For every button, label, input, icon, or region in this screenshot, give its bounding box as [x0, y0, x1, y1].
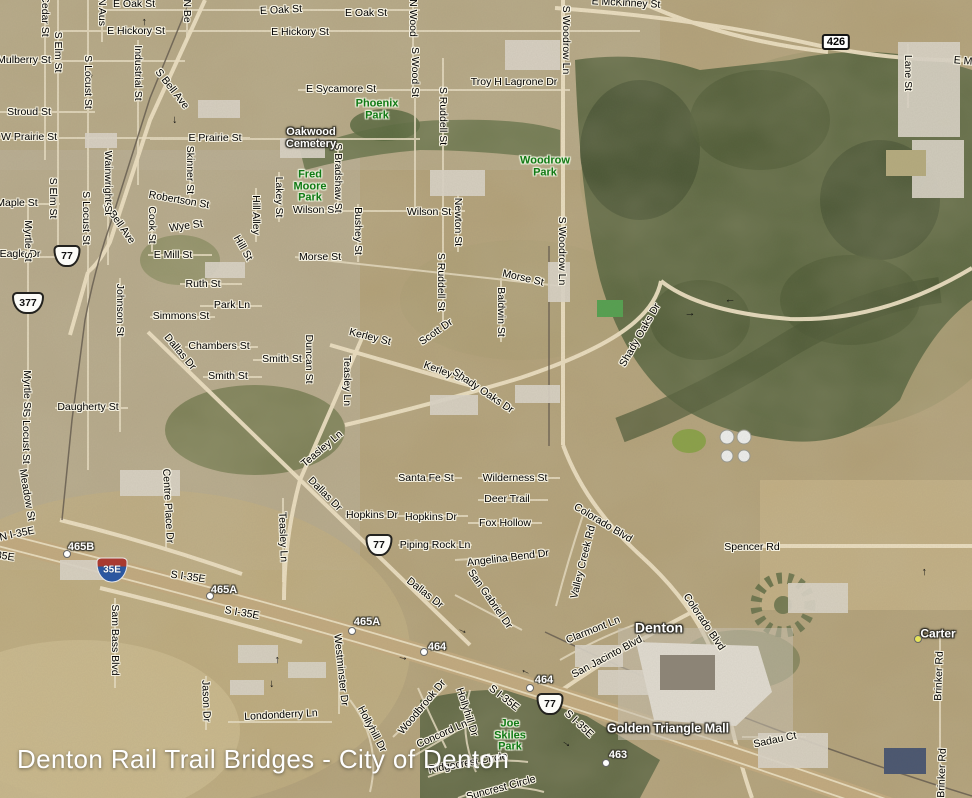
- exit-number-label: 465A: [211, 584, 237, 596]
- street-label: Eagle Dr: [0, 248, 40, 260]
- street-label: S Locust St: [80, 191, 92, 245]
- street-label: Sam Bass Blvd: [109, 604, 121, 675]
- park-label: FredMoorePark: [294, 170, 327, 205]
- label-line: Park: [356, 110, 399, 122]
- street-label: Stroud St: [7, 106, 51, 118]
- park-label: WoodrowPark: [520, 155, 570, 178]
- one-way-arrow-icon: →: [397, 650, 410, 664]
- exit-dot: [602, 759, 610, 767]
- exit-number-label: 464: [535, 674, 553, 686]
- one-way-arrow-icon: →: [685, 307, 696, 319]
- place-label: Carter: [920, 628, 955, 641]
- street-label: Teasley Ln: [276, 512, 290, 563]
- street-label: N Aus: [96, 0, 108, 26]
- exit-dot: [206, 592, 214, 600]
- shield-number: 77: [373, 539, 385, 551]
- street-label: E Oak St: [113, 0, 155, 10]
- label-line: Fred: [294, 170, 327, 182]
- street-label: Newton St: [452, 198, 464, 246]
- street-label: Industrial St: [132, 45, 144, 100]
- street-label: Smith St: [208, 370, 248, 382]
- place-label: Golden Triangle Mall: [607, 722, 729, 736]
- street-label: E M: [953, 54, 972, 68]
- street-label: Deer Trail: [484, 493, 530, 505]
- one-way-arrow-icon: →: [270, 655, 282, 666]
- street-label: S Woodrow Ln: [556, 217, 568, 286]
- loop-426-shield: 426: [822, 34, 850, 50]
- street-label: Ruth St: [185, 278, 220, 290]
- street-label: Fox Hollow: [479, 517, 531, 529]
- street-label: Johnson St: [114, 284, 126, 337]
- label-line: Cemetery: [286, 139, 336, 151]
- street-label: Simmons St: [153, 310, 210, 322]
- street-label: Piping Rock Ln: [400, 539, 471, 551]
- street-label: Baldwin St: [495, 287, 507, 337]
- exit-dot: [420, 648, 428, 656]
- street-label: Santa Fe St: [398, 472, 453, 484]
- one-way-arrow-icon: →: [725, 296, 736, 308]
- street-label: Daugherty St: [57, 401, 118, 413]
- street-label: Wilderness St: [483, 472, 548, 484]
- street-label: Brinker Rd: [935, 748, 949, 798]
- street-label: Jason Dr: [199, 680, 212, 722]
- street-label: S Ruddell St: [437, 87, 449, 145]
- one-way-arrow-icon: →: [267, 679, 279, 690]
- label-line: Denton: [635, 620, 683, 635]
- exit-dot: [63, 550, 71, 558]
- street-label: E Prairie St: [188, 132, 241, 144]
- street-label: Troy H Lagrone Dr: [471, 76, 558, 88]
- street-label: S Bradshaw St: [332, 143, 344, 212]
- one-way-arrow-icon: →: [917, 567, 929, 578]
- street-label: Morse St: [299, 251, 341, 263]
- street-label: Lane St: [902, 55, 914, 91]
- street-label: S Woodrow Ln: [560, 6, 572, 75]
- label-line: Phoenix: [356, 98, 399, 110]
- street-label: Cedar St: [39, 0, 51, 37]
- street-label: W Prairie St: [1, 131, 57, 143]
- street-label: Park Ln: [214, 299, 250, 311]
- one-way-arrow-icon: →: [170, 115, 182, 126]
- street-label: Skinner St: [184, 146, 196, 194]
- street-label: Duncan St: [303, 334, 315, 383]
- exit-number-label: 465A: [354, 616, 380, 628]
- street-label: I-35E: [0, 548, 15, 563]
- exit-dot: [348, 627, 356, 635]
- street-label: E Mill St: [154, 249, 193, 261]
- street-label: Maple St: [0, 197, 38, 209]
- street-label: E Hickory St: [107, 25, 165, 37]
- place-dot: [914, 635, 922, 643]
- street-label: S Elm St: [52, 32, 64, 73]
- street-label: Wainwright St: [102, 151, 114, 215]
- street-label: N Be: [181, 0, 193, 23]
- map-title-overlay: Denton Rail Trail Bridges - City of Dent…: [17, 744, 509, 775]
- label-line: Park: [520, 167, 570, 179]
- label-line: Woodrow: [520, 155, 570, 167]
- exit-dot: [526, 684, 534, 692]
- street-label: Cook St: [146, 206, 158, 243]
- label-line: Joe: [494, 719, 526, 731]
- exit-number-label: 464: [428, 641, 446, 653]
- aerial-map-canvas[interactable]: Denton Rail Trail Bridges - City of Dent…: [0, 0, 972, 798]
- street-label: Mulberry St: [0, 54, 51, 66]
- street-label: E Oak St: [260, 3, 303, 17]
- shield-number: 377: [19, 297, 37, 309]
- street-label: N Wood: [407, 0, 419, 37]
- street-label: E Sycamore St: [306, 83, 376, 95]
- shield-number: 77: [61, 250, 73, 262]
- shield-number: 77: [544, 698, 556, 710]
- street-label: Wilson St: [407, 206, 451, 218]
- street-label: S Wood St: [409, 47, 421, 97]
- shield-number: 426: [827, 36, 845, 48]
- label-line: Carter: [920, 628, 955, 641]
- street-label: Spencer Rd: [724, 541, 779, 553]
- exit-number-label: 463: [609, 749, 627, 761]
- street-label: E Oak St: [345, 7, 387, 19]
- exit-number-label: 465B: [68, 541, 94, 553]
- street-label: Hopkins Dr: [405, 511, 457, 523]
- street-label: S Elm St: [47, 178, 59, 219]
- street-label: S Locust St: [82, 55, 94, 109]
- street-label: Hopkins Dr: [346, 509, 398, 521]
- street-label: Myrtle St: [22, 220, 34, 261]
- street-label: Chambers St: [188, 340, 249, 352]
- street-label: S Ruddell St: [435, 253, 447, 311]
- street-label: E Hickory St: [271, 26, 329, 38]
- street-label: Brinker Rd: [932, 651, 946, 701]
- label-line: Park: [294, 193, 327, 205]
- label-line: Golden Triangle Mall: [607, 722, 729, 736]
- shield-number: 35E: [103, 565, 121, 576]
- place-label: Denton: [635, 620, 683, 635]
- street-label: Wilson St: [293, 204, 337, 216]
- street-label: Teasley Ln: [341, 356, 353, 406]
- street-label: Hill Alley: [250, 195, 262, 235]
- park-label: PhoenixPark: [356, 98, 399, 121]
- place-label: OakwoodCemetery: [286, 127, 336, 151]
- street-label: Smith St: [262, 353, 302, 365]
- street-label: Myrtle St: [21, 370, 33, 411]
- street-label: S Locust St: [20, 410, 32, 464]
- street-label: Bushey St: [352, 207, 364, 255]
- street-label: Lakey St: [273, 177, 285, 218]
